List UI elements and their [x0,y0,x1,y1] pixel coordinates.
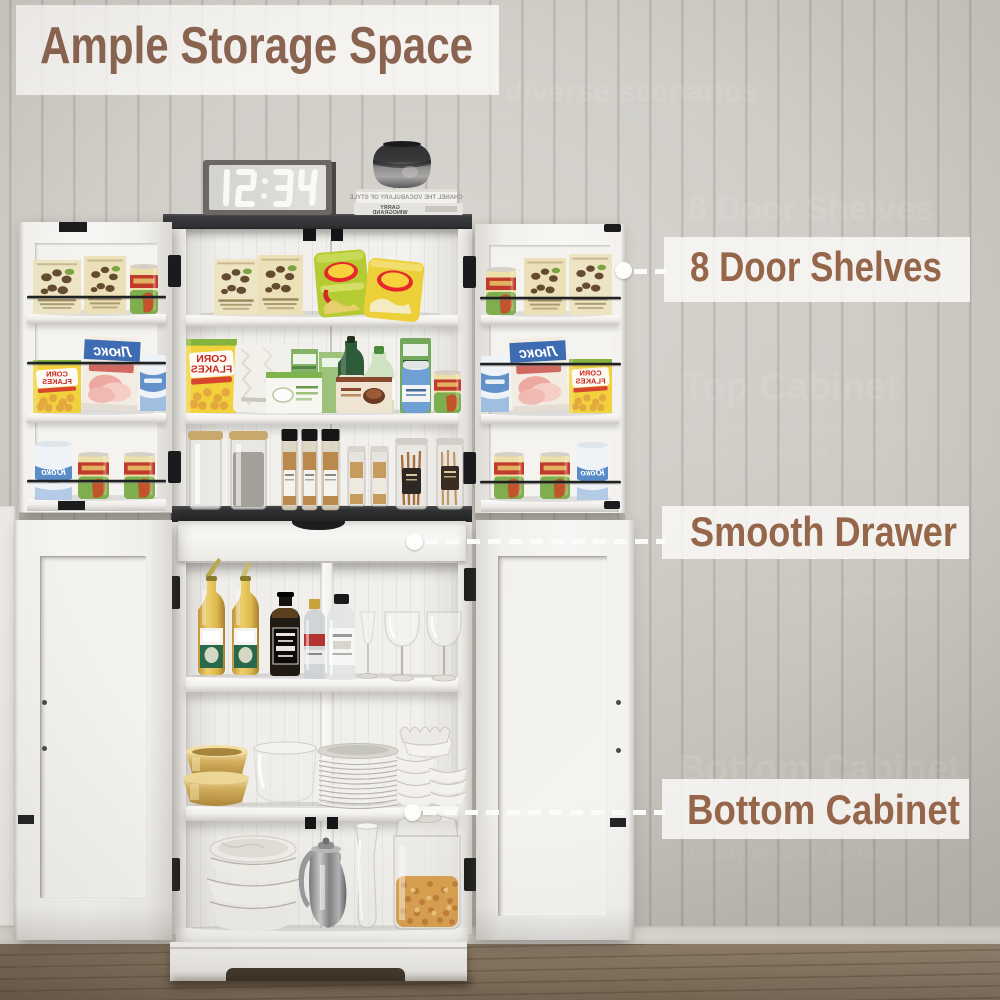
svg-text:CHANEL THE VOCABULARY OF STYL: CHANEL THE VOCABULARY OF STYLE [349,195,462,201]
svg-text:FLAKES: FLAKES [191,364,233,375]
svg-text:Юоко: Юоко [580,468,605,478]
svg-text:FLAKES: FLAKES [42,377,72,386]
svg-text:Люкс: Люкс [93,343,133,361]
svg-text:Люкс: Люкс [518,344,558,362]
svg-text:FLAKES: FLAKES [575,376,605,385]
svg-text:Юоко: Юоко [41,467,66,477]
svg-text:CORN: CORN [196,354,227,365]
svg-text:WINOGRAND: WINOGRAND [372,210,407,216]
